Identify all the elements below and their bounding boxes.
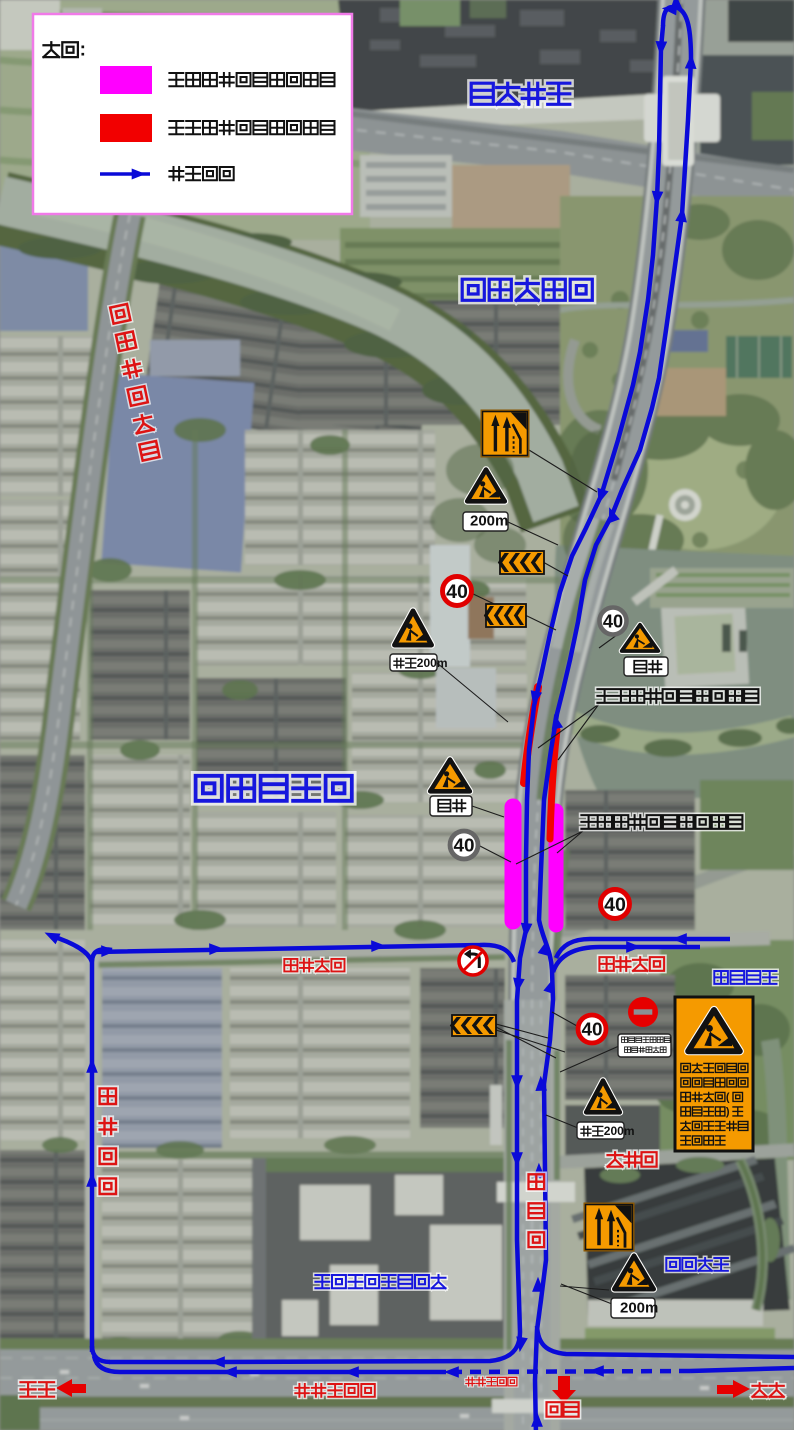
svg-text:200m: 200m <box>417 656 448 670</box>
svg-text:200m: 200m <box>470 512 508 529</box>
svg-text:40: 40 <box>603 612 623 632</box>
svg-text:(: ( <box>726 1092 730 1104</box>
svg-text:40: 40 <box>604 894 626 916</box>
svg-text:40: 40 <box>446 581 468 603</box>
svg-text:40: 40 <box>581 1020 602 1041</box>
svg-text:200m: 200m <box>620 1299 658 1316</box>
svg-text::: : <box>80 40 86 61</box>
svg-text:40: 40 <box>453 836 474 857</box>
svg-text:200m: 200m <box>604 1124 635 1138</box>
svg-text:): ) <box>726 1106 730 1118</box>
